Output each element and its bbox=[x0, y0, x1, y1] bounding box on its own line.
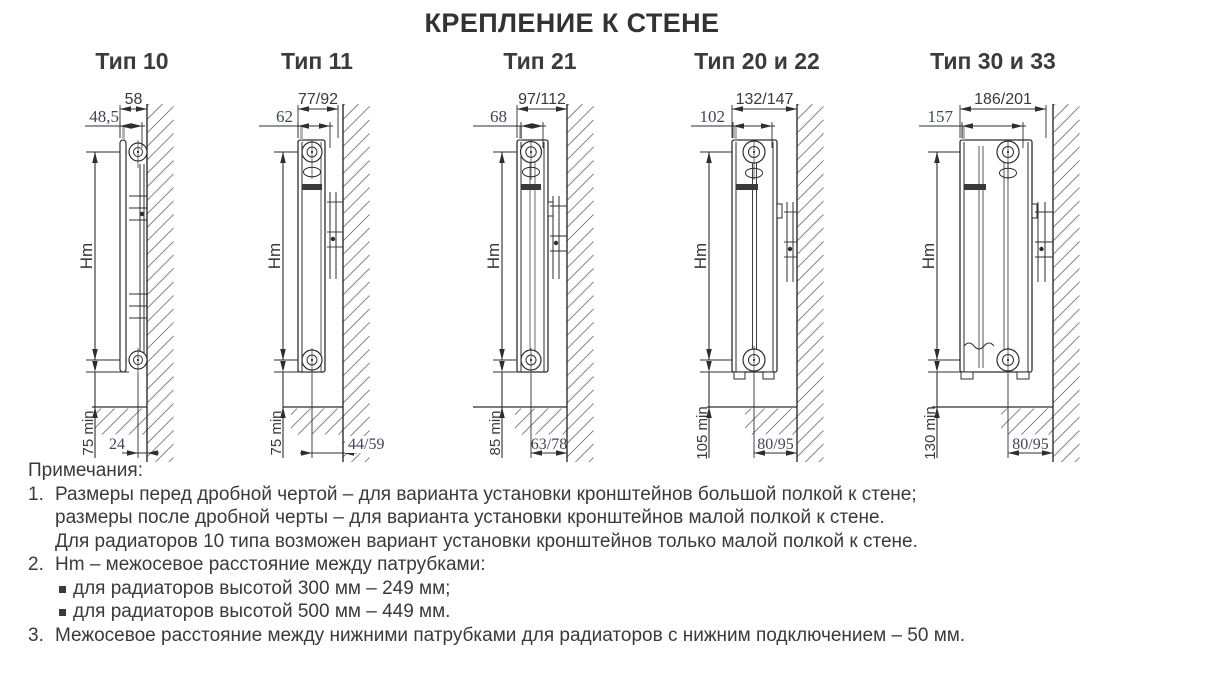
dim-bottom-offset: 80/95 bbox=[757, 436, 793, 453]
dim-floor-clearance: 105 min bbox=[694, 406, 711, 459]
dim-bracket-depth: 102 bbox=[700, 107, 726, 126]
diagram-type-30-33: 186/201157Hm130 min80/95 bbox=[880, 84, 1085, 466]
diagram-title-type-10: Тип 10 bbox=[52, 48, 212, 75]
page: КРЕПЛЕНИЕ К СТЕНЕ Тип 10 Тип 11 Тип 21 Т… bbox=[0, 0, 1220, 680]
note-line: Размеры перед дробной чертой – для вариа… bbox=[55, 483, 918, 507]
note-bullet-text: для радиаторов высотой 300 мм – 249 мм; bbox=[73, 578, 450, 599]
dim-bottom-offset: 44/59 bbox=[348, 436, 384, 453]
dim-bracket-depth: 62 bbox=[276, 107, 293, 126]
radiator-drawing-type-21: 97/11268Hm85 min63/78 bbox=[473, 91, 567, 458]
dim-axis-distance: Hm bbox=[691, 243, 710, 269]
dim-floor-clearance: 85 min bbox=[487, 410, 504, 455]
dim-axis-distance: Hm bbox=[265, 243, 284, 269]
note-bullet: для радиаторов высотой 500 мм – 449 мм. bbox=[55, 600, 486, 624]
note-item-3: 3. Межосевое расстояние между нижними па… bbox=[28, 624, 1208, 648]
diagram-title-type-30-33: Тип 30 и 33 bbox=[913, 48, 1073, 75]
dim-bracket-depth: 48,5 bbox=[89, 107, 119, 126]
dim-total-depth: 186/201 bbox=[974, 91, 1032, 108]
note-number: 1. bbox=[28, 483, 55, 554]
diagram-type-20-22: 132/147102Hm105 min80/95 bbox=[655, 84, 833, 466]
note-line: размеры после дробной черты – для вариан… bbox=[55, 506, 918, 530]
dim-total-depth: 58 bbox=[125, 91, 143, 108]
diagram-title-type-20-22: Тип 20 и 22 bbox=[677, 48, 837, 75]
dim-bottom-offset: 80/95 bbox=[1012, 436, 1048, 453]
square-bullet-icon bbox=[59, 586, 66, 593]
diagram-title-type-21: Тип 21 bbox=[460, 48, 620, 75]
dim-total-depth: 132/147 bbox=[736, 91, 794, 108]
dim-floor-clearance: 130 min bbox=[922, 406, 939, 459]
notes-heading: Примечания: bbox=[28, 459, 1208, 483]
diagram-type-11: 77/9262Hm75 min44/59 bbox=[245, 84, 397, 466]
radiator-drawing-type-11: 77/9262Hm75 min44/59 bbox=[259, 91, 393, 458]
note-line: Межосевое расстояние между нижними патру… bbox=[55, 624, 965, 648]
diagram-type-10: 5848,5Hm75 min24 bbox=[55, 84, 195, 466]
note-line: Hm – межосевое расстояние между патрубка… bbox=[55, 553, 486, 577]
dim-floor-clearance: 75 min bbox=[80, 410, 97, 455]
dim-floor-clearance: 75 min bbox=[268, 410, 285, 455]
dim-bracket-depth: 68 bbox=[490, 107, 507, 126]
note-number: 3. bbox=[28, 624, 55, 648]
dim-total-depth: 77/92 bbox=[298, 91, 338, 108]
radiator-drawing-type-20-22: 132/147102Hm105 min80/95 bbox=[691, 91, 797, 460]
dim-axis-distance: Hm bbox=[77, 243, 96, 269]
dim-bottom-offset: 24 bbox=[109, 436, 125, 453]
note-number: 2. bbox=[28, 553, 55, 624]
dim-axis-distance: Hm bbox=[919, 243, 938, 269]
note-item-2: 2. Hm – межосевое расстояние между патру… bbox=[28, 553, 1208, 624]
radiator-drawing-type-30-33: 186/201157Hm130 min80/95 bbox=[919, 91, 1053, 460]
note-line: Для радиаторов 10 типа возможен вариант … bbox=[55, 530, 918, 554]
square-bullet-icon bbox=[59, 609, 66, 616]
page-title: КРЕПЛЕНИЕ К СТЕНЕ bbox=[0, 8, 1144, 39]
dim-bracket-depth: 157 bbox=[928, 107, 954, 126]
note-bullet-text: для радиаторов высотой 500 мм – 449 мм. bbox=[73, 601, 450, 622]
diagram-type-21: 97/11268Hm85 min63/78 bbox=[440, 84, 605, 466]
note-bullet: для радиаторов высотой 300 мм – 249 мм; bbox=[55, 577, 486, 601]
notes-section: Примечания: 1. Размеры перед дробной чер… bbox=[28, 459, 1208, 647]
dim-bottom-offset: 63/78 bbox=[531, 436, 567, 453]
diagram-title-type-11: Тип 11 bbox=[237, 48, 397, 75]
dim-total-depth: 97/112 bbox=[518, 91, 566, 108]
dim-axis-distance: Hm bbox=[484, 243, 503, 269]
note-item-1: 1. Размеры перед дробной чертой – для ва… bbox=[28, 483, 1208, 554]
